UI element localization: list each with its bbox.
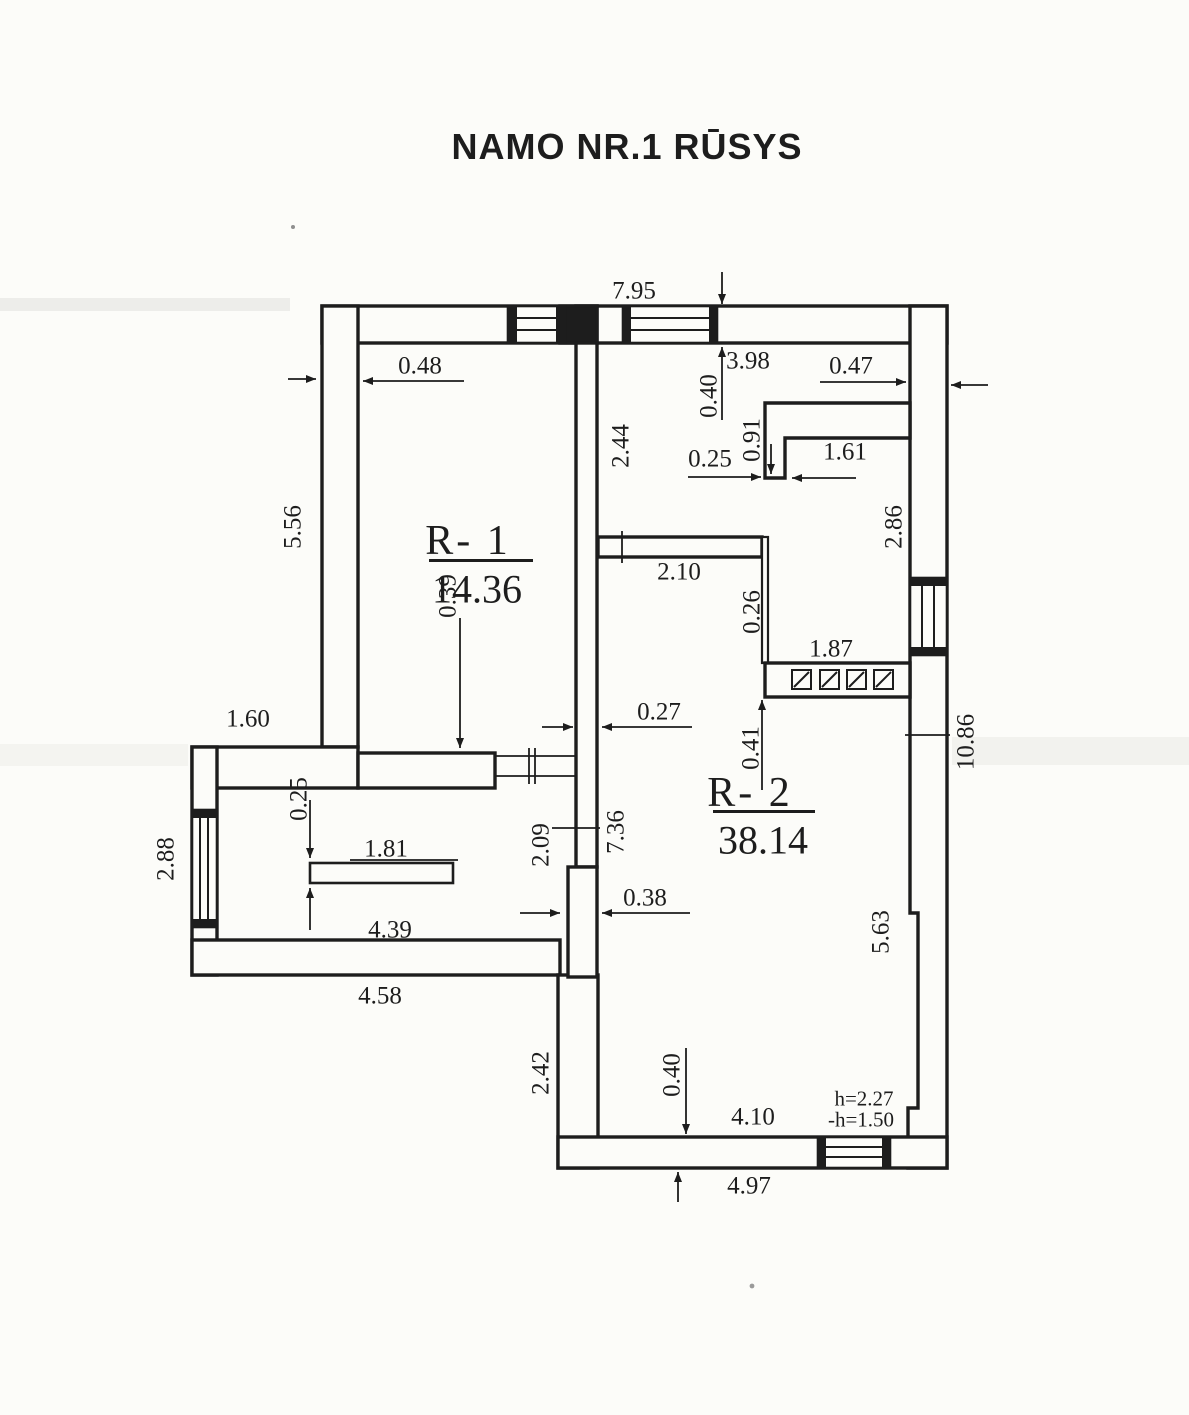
dimension-label: 0.38 [623, 886, 667, 911]
room-area-r2: 38.14 [718, 817, 808, 864]
dimension-label: 1.87 [809, 637, 853, 662]
dimension-label: -h=1.50 [828, 1110, 894, 1131]
dimension-label: h=2.27 [834, 1089, 893, 1110]
dimension-label: 0.48 [398, 354, 442, 379]
window-left [192, 810, 217, 927]
dimension-label: 2.86 [882, 505, 907, 549]
door-opening [495, 748, 576, 784]
window-bottom [818, 1137, 890, 1168]
wall-r1-bottom [358, 753, 495, 788]
dimension-label: 0.39 [436, 574, 461, 618]
room-r1-fraction-line [429, 559, 533, 562]
dimension-label: 1.60 [226, 707, 270, 732]
wall-sw-room-bottom [192, 940, 560, 975]
dimension-label: 7.95 [612, 279, 656, 304]
dimension-label: 2.88 [154, 837, 179, 881]
floorplan-sheet: NAMO NR.1 RŪSYS R- 1 14.36 R- 2 38.14 7.… [0, 0, 1189, 1415]
dimension-label: 4.58 [358, 984, 402, 1009]
dimension-label: 0.91 [740, 418, 765, 462]
wall-r1-r2-divider-lower [568, 867, 597, 977]
dimension-label: 10.86 [954, 714, 979, 770]
dimension-label: 0.27 [637, 700, 681, 725]
dimension-label: 4.10 [731, 1105, 775, 1130]
dimension-label: 2.09 [529, 823, 554, 867]
floorplan-drawing [0, 0, 1189, 1415]
room-label-r1: R- 1 [425, 517, 511, 565]
wall-left-upper [322, 306, 358, 747]
window-right [910, 578, 947, 655]
dimension-label: 0.26 [740, 590, 765, 634]
dimension-label: 0.40 [660, 1053, 685, 1097]
wall-right [908, 306, 947, 1168]
dimension-label: 7.36 [604, 810, 629, 854]
partition-bar [310, 863, 453, 883]
dimension-label: 2.10 [657, 560, 701, 585]
dimension-label: 4.97 [727, 1174, 771, 1199]
dimension-label: 2.42 [529, 1051, 554, 1095]
dimension-label: 0.25 [287, 777, 312, 821]
dimension-label: 5.56 [281, 505, 306, 549]
room-r2-fraction-line [713, 810, 815, 813]
wall-r1-r2-divider [576, 306, 597, 867]
dimension-label: 0.47 [829, 354, 873, 379]
dimension-label: 0.40 [697, 374, 722, 418]
walls [192, 306, 947, 1168]
page-title: NAMO NR.1 RŪSYS [451, 126, 802, 168]
dimension-label: 0.25 [688, 447, 732, 472]
dimension-label: 0.41 [739, 726, 764, 770]
dimension-label: 1.81 [364, 837, 408, 862]
dimension-label: 3.98 [726, 349, 770, 374]
window-top-right [623, 306, 717, 343]
dimension-label: 4.39 [368, 918, 412, 943]
dimension-label: 5.63 [869, 910, 894, 954]
dimension-label: 2.44 [609, 424, 634, 468]
window-top-left [508, 306, 565, 343]
dimension-label: 1.61 [823, 440, 867, 465]
